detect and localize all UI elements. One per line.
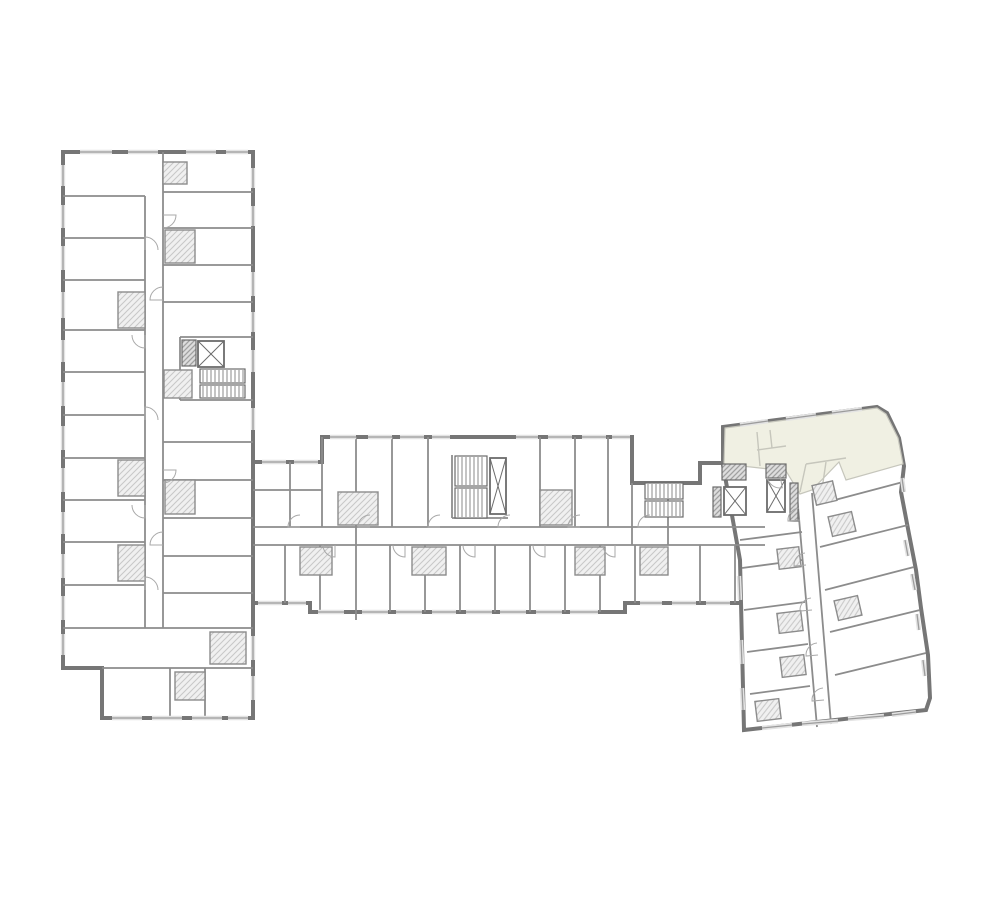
bathroom-hatch bbox=[165, 480, 195, 514]
bathroom-hatch bbox=[412, 547, 446, 575]
elevator-shaft bbox=[198, 341, 224, 367]
stairs bbox=[455, 456, 487, 486]
core-hatch-wall bbox=[766, 464, 786, 478]
floor-plan-svg bbox=[0, 0, 1000, 900]
bathroom-hatch bbox=[834, 596, 862, 621]
bathroom-hatch bbox=[540, 490, 572, 525]
bathroom-hatch bbox=[755, 699, 781, 722]
bathroom-hatch bbox=[118, 292, 145, 328]
bathroom-hatch bbox=[812, 481, 837, 505]
stairs bbox=[645, 501, 683, 517]
bathroom-hatch bbox=[828, 512, 856, 537]
stairs bbox=[645, 483, 683, 499]
bathroom-hatch bbox=[777, 611, 803, 634]
floor-plan bbox=[0, 0, 1000, 900]
bathroom-hatch bbox=[118, 460, 145, 496]
bathroom-hatch bbox=[780, 655, 806, 678]
elevator-shaft bbox=[490, 458, 506, 514]
bathroom-hatch bbox=[175, 672, 205, 700]
bathroom-hatch bbox=[575, 547, 605, 575]
bathroom-hatch bbox=[118, 545, 145, 581]
elevator-shaft bbox=[724, 487, 746, 515]
bathroom-hatch bbox=[164, 370, 192, 398]
bathroom-hatch bbox=[640, 547, 668, 575]
core-hatch-wall bbox=[713, 487, 721, 517]
stairs bbox=[455, 488, 487, 518]
wing-outline-central-bar bbox=[253, 437, 765, 612]
stairs bbox=[200, 385, 245, 398]
bathroom-hatch bbox=[300, 547, 332, 575]
bathroom-hatch bbox=[163, 162, 187, 184]
bathroom-hatch bbox=[338, 492, 378, 525]
elevator-shaft bbox=[767, 480, 785, 512]
stairs bbox=[200, 369, 245, 383]
core-hatch-wall bbox=[790, 483, 798, 521]
bathroom-hatch bbox=[210, 632, 246, 664]
core-hatch-wall bbox=[182, 340, 196, 366]
bathroom-hatch bbox=[165, 230, 195, 263]
core-hatch-wall bbox=[722, 464, 746, 480]
